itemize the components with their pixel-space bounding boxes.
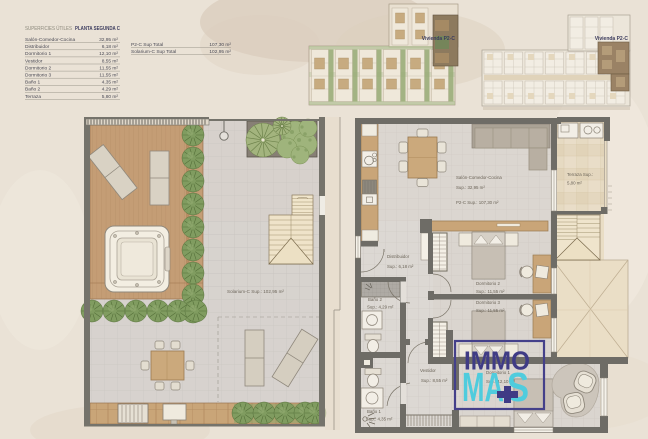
svg-text:11,55 m²: 11,55 m² <box>99 73 118 79</box>
svg-text:11,55 m²: 11,55 m² <box>99 65 118 71</box>
svg-text:Dormitorio 2: Dormitorio 2 <box>476 281 500 286</box>
svg-text:102,95 m²: 102,95 m² <box>209 49 231 55</box>
svg-text:Sup.: 6,18 m²: Sup.: 6,18 m² <box>387 264 414 269</box>
svg-text:5,80 m²: 5,80 m² <box>102 94 119 100</box>
svg-text:107,30 m²: 107,30 m² <box>209 42 231 48</box>
svg-text:Baño 2: Baño 2 <box>25 87 41 93</box>
svg-text:Vestidor: Vestidor <box>420 368 436 373</box>
svg-text:Sup.: 11,55 m²: Sup.: 11,55 m² <box>476 289 505 294</box>
svg-text:Sup.: 32,95 m²: Sup.: 32,95 m² <box>456 185 485 190</box>
svg-text:Dormitorio 1: Dormitorio 1 <box>25 51 51 57</box>
svg-text:Baño 1: Baño 1 <box>367 409 381 414</box>
svg-text:Dormitorio 2: Dormitorio 2 <box>25 65 51 71</box>
svg-text:Sup.: 8,55 m²: Sup.: 8,55 m² <box>421 378 448 383</box>
svg-text:Salón-Comedor-Cocina: Salón-Comedor-Cocina <box>456 175 502 180</box>
svg-text:Distribuidor: Distribuidor <box>387 254 410 259</box>
svg-text:5,80 m²: 5,80 m² <box>567 181 582 186</box>
svg-text:Distribuidor: Distribuidor <box>25 44 50 50</box>
svg-text:Solarium-C Sup.: 102,95 m²: Solarium-C Sup.: 102,95 m² <box>227 289 284 294</box>
svg-text:8,55 m²: 8,55 m² <box>102 58 119 64</box>
svg-text:P2-C Sup.: 107,30 m²: P2-C Sup.: 107,30 m² <box>456 200 499 205</box>
svg-text:Sup.: 4,29 m²: Sup.: 4,29 m² <box>367 305 394 310</box>
svg-text:PLANTA SEGUNDA C: PLANTA SEGUNDA C <box>75 26 120 32</box>
svg-text:Dormitorio 3: Dormitorio 3 <box>476 300 500 305</box>
svg-text:Sup.: 4,35 m²: Sup.: 4,35 m² <box>366 417 393 422</box>
svg-text:4,29 m²: 4,29 m² <box>102 87 119 93</box>
svg-text:Terraza: Terraza <box>25 94 41 100</box>
svg-text:Baño 1: Baño 1 <box>25 80 41 86</box>
svg-text:12,10 m²: 12,10 m² <box>99 51 118 57</box>
svg-text:Dormitorio 3: Dormitorio 3 <box>25 73 51 79</box>
svg-text:P2-C Sup Total: P2-C Sup Total <box>131 42 163 48</box>
svg-text:Baño 2: Baño 2 <box>368 297 382 302</box>
svg-text:Vivienda P2-C: Vivienda P2-C <box>595 36 629 42</box>
svg-text:Vivienda P2-C: Vivienda P2-C <box>422 36 456 42</box>
svg-text:32,95 m²: 32,95 m² <box>99 37 118 43</box>
svg-text:MA: MA <box>462 364 504 410</box>
svg-text:Terraza Sup.:: Terraza Sup.: <box>567 172 593 177</box>
svg-text:Sup.: 11,55 m²: Sup.: 11,55 m² <box>476 308 505 313</box>
svg-text:SUPERFICIES ÚTILES: SUPERFICIES ÚTILES <box>25 25 73 32</box>
svg-text:Salón-Comedor-Cocina: Salón-Comedor-Cocina <box>25 37 75 43</box>
svg-text:Solarium-C Sup Total: Solarium-C Sup Total <box>131 49 176 55</box>
svg-text:Vestidor: Vestidor <box>25 58 43 64</box>
svg-text:6,18 m²: 6,18 m² <box>102 44 119 50</box>
svg-text:4,35 m²: 4,35 m² <box>102 80 119 86</box>
